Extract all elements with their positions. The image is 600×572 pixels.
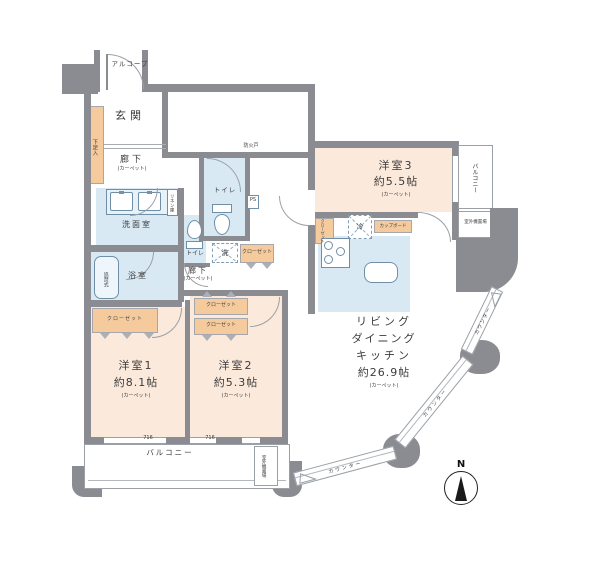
wall-segment bbox=[84, 84, 91, 444]
door-arc-ldk bbox=[279, 196, 309, 226]
hall-upper-label: 廊下 bbox=[108, 155, 156, 165]
wall-segment bbox=[308, 84, 315, 190]
bedroom3-floor-label: (カーペット) bbox=[362, 193, 430, 199]
fridge-label: 冷 bbox=[349, 223, 371, 231]
hall-mid-floor: (カーペット) bbox=[172, 277, 224, 283]
ldk-line2: ダイニング bbox=[340, 333, 428, 346]
toilet-a-label: トイレ bbox=[206, 187, 244, 194]
partition-panel-icon bbox=[296, 469, 316, 484]
closet-bedroom1-label: クローゼット bbox=[92, 317, 158, 323]
bedroom2-floor-label: (カーペット) bbox=[202, 394, 270, 400]
bifold-mark bbox=[202, 335, 212, 341]
pillar bbox=[456, 238, 518, 292]
door-arc-bedroom3 bbox=[418, 212, 451, 242]
compass-needle-icon bbox=[455, 476, 467, 501]
bedroom1-size: 約8.1帖 bbox=[92, 377, 180, 390]
wall-segment bbox=[162, 92, 168, 152]
wall-segment bbox=[162, 152, 309, 158]
window-code: 716 bbox=[200, 436, 220, 442]
pillar bbox=[490, 208, 518, 242]
stove-burner bbox=[336, 247, 345, 256]
door-leaf bbox=[106, 54, 108, 90]
outdoor-unit-right-label: 室外機置場 bbox=[458, 220, 493, 225]
washer-label: 洗 bbox=[213, 249, 237, 257]
hall-upper-floor: (カーペット) bbox=[104, 167, 160, 173]
washroom-label: 洗面室 bbox=[112, 220, 162, 229]
compass-north-label: N bbox=[452, 459, 470, 471]
bedroom1-floor-label: (カーペット) bbox=[102, 394, 170, 400]
wall-segment bbox=[184, 290, 288, 296]
bifold-mark bbox=[144, 333, 154, 339]
bifold-mark bbox=[202, 291, 212, 297]
toilet-tank bbox=[212, 204, 232, 213]
genkan-step-line bbox=[104, 144, 166, 149]
genkan-label: 玄関 bbox=[106, 110, 154, 123]
bifold-mark bbox=[262, 263, 272, 269]
window-code: 716 bbox=[138, 436, 158, 442]
closet-bedroom2-upper-label: クローゼット bbox=[194, 303, 248, 309]
washer-space: 洗 bbox=[212, 243, 238, 263]
bifold-mark bbox=[246, 263, 256, 269]
ldk-size: 約26.9帖 bbox=[342, 367, 426, 380]
bifold-mark bbox=[122, 333, 132, 339]
toilet-b-label: トイレ bbox=[181, 251, 209, 258]
stove-burner bbox=[324, 255, 333, 264]
ldk-line3: キッチン bbox=[344, 350, 424, 363]
wall-segment bbox=[185, 300, 190, 444]
floor-plan: カウンター カウンター カウンター 洗 冷 bbox=[0, 0, 600, 572]
toilet-tank bbox=[186, 241, 203, 249]
fridge-space: 冷 bbox=[348, 215, 372, 239]
facade-band: カウンター bbox=[293, 446, 397, 486]
pipe-space-label: PS bbox=[247, 198, 259, 204]
balcony-bottom-label: バルコニー bbox=[130, 449, 210, 458]
fire-door-label: 防火戸 bbox=[234, 144, 268, 150]
faucet-icon bbox=[119, 191, 124, 194]
hall-mid-label: 廊下 bbox=[176, 266, 220, 275]
shoe-cabinet-label: 下足入 bbox=[91, 116, 97, 178]
wall-segment bbox=[148, 84, 315, 92]
cupboard-label: カップボード bbox=[374, 224, 412, 229]
wall-segment bbox=[84, 245, 180, 252]
wall-segment bbox=[84, 300, 182, 307]
wall-segment bbox=[312, 141, 458, 148]
closet-bedroom3-label: クローゼット bbox=[320, 219, 325, 243]
balcony-right-label: バルコニー bbox=[470, 150, 477, 206]
bathtub-label: 追焚式 bbox=[102, 262, 108, 296]
bedroom2-size: 約5.3帖 bbox=[192, 377, 280, 390]
wall-segment bbox=[199, 236, 246, 241]
closet-hall-label: クローゼット bbox=[240, 250, 274, 256]
bifold-mark bbox=[226, 291, 236, 297]
bedroom2-name: 洋室2 bbox=[196, 360, 276, 373]
toilet-bowl bbox=[187, 220, 202, 239]
wall-segment bbox=[308, 225, 315, 314]
bedroom1-name: 洋室1 bbox=[96, 360, 176, 373]
ldk-floor-label: (カーペット) bbox=[350, 384, 418, 390]
bifold-mark bbox=[226, 335, 236, 341]
linen-label: リネン庫 bbox=[169, 192, 174, 214]
ldk-line1: リビング bbox=[344, 316, 424, 329]
bifold-mark bbox=[100, 333, 110, 339]
outdoor-unit-bottom-label: 室外機置場 bbox=[261, 449, 266, 484]
bedroom3-name: 洋室3 bbox=[356, 160, 436, 173]
alcove-label: アルコーブ bbox=[104, 61, 156, 68]
closet-bedroom2-lower-label: クローゼット bbox=[194, 323, 248, 329]
bedroom3-size: 約5.5帖 bbox=[352, 176, 440, 189]
kitchen-sink bbox=[364, 262, 398, 283]
bathroom-label: 浴室 bbox=[120, 271, 156, 280]
